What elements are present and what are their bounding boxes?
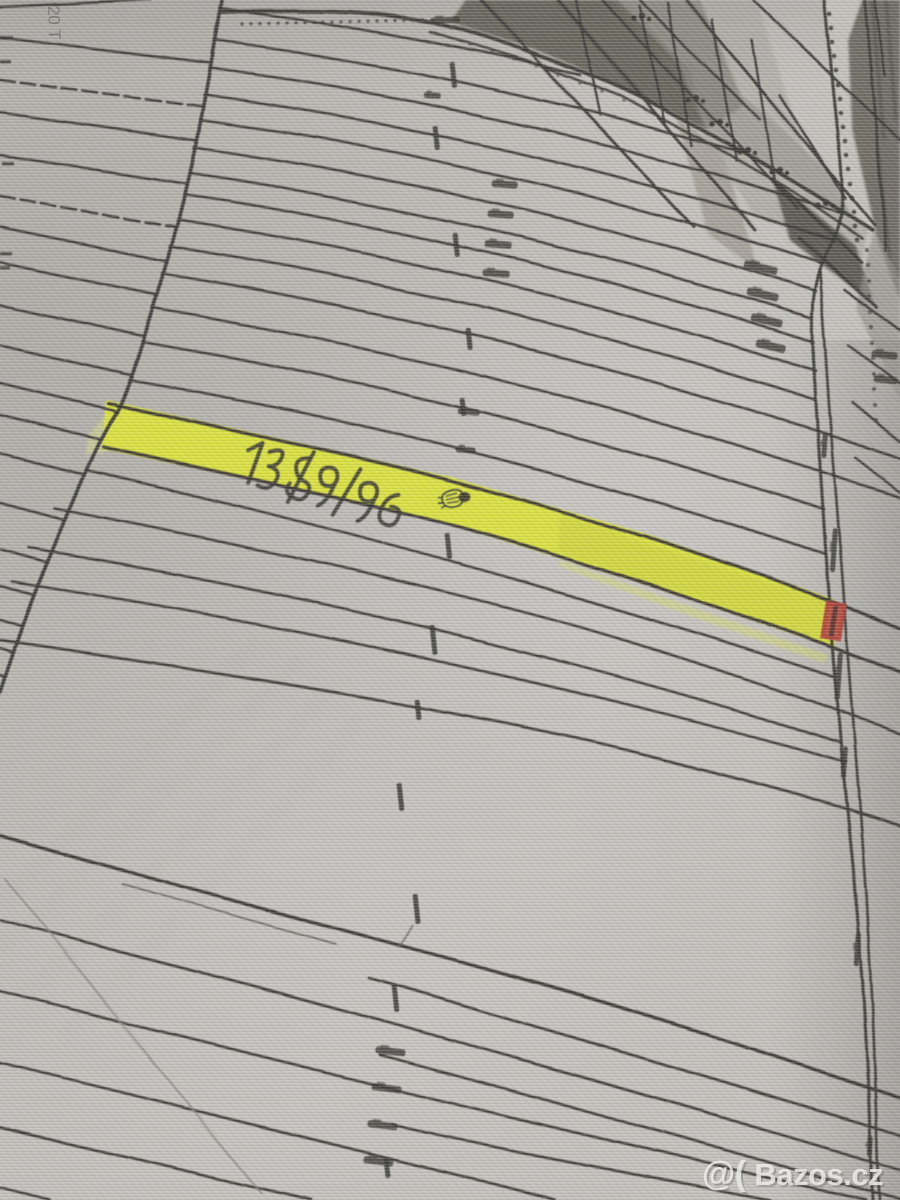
- svg-text:@( Bazos.cz: @( Bazos.cz: [702, 1155, 883, 1193]
